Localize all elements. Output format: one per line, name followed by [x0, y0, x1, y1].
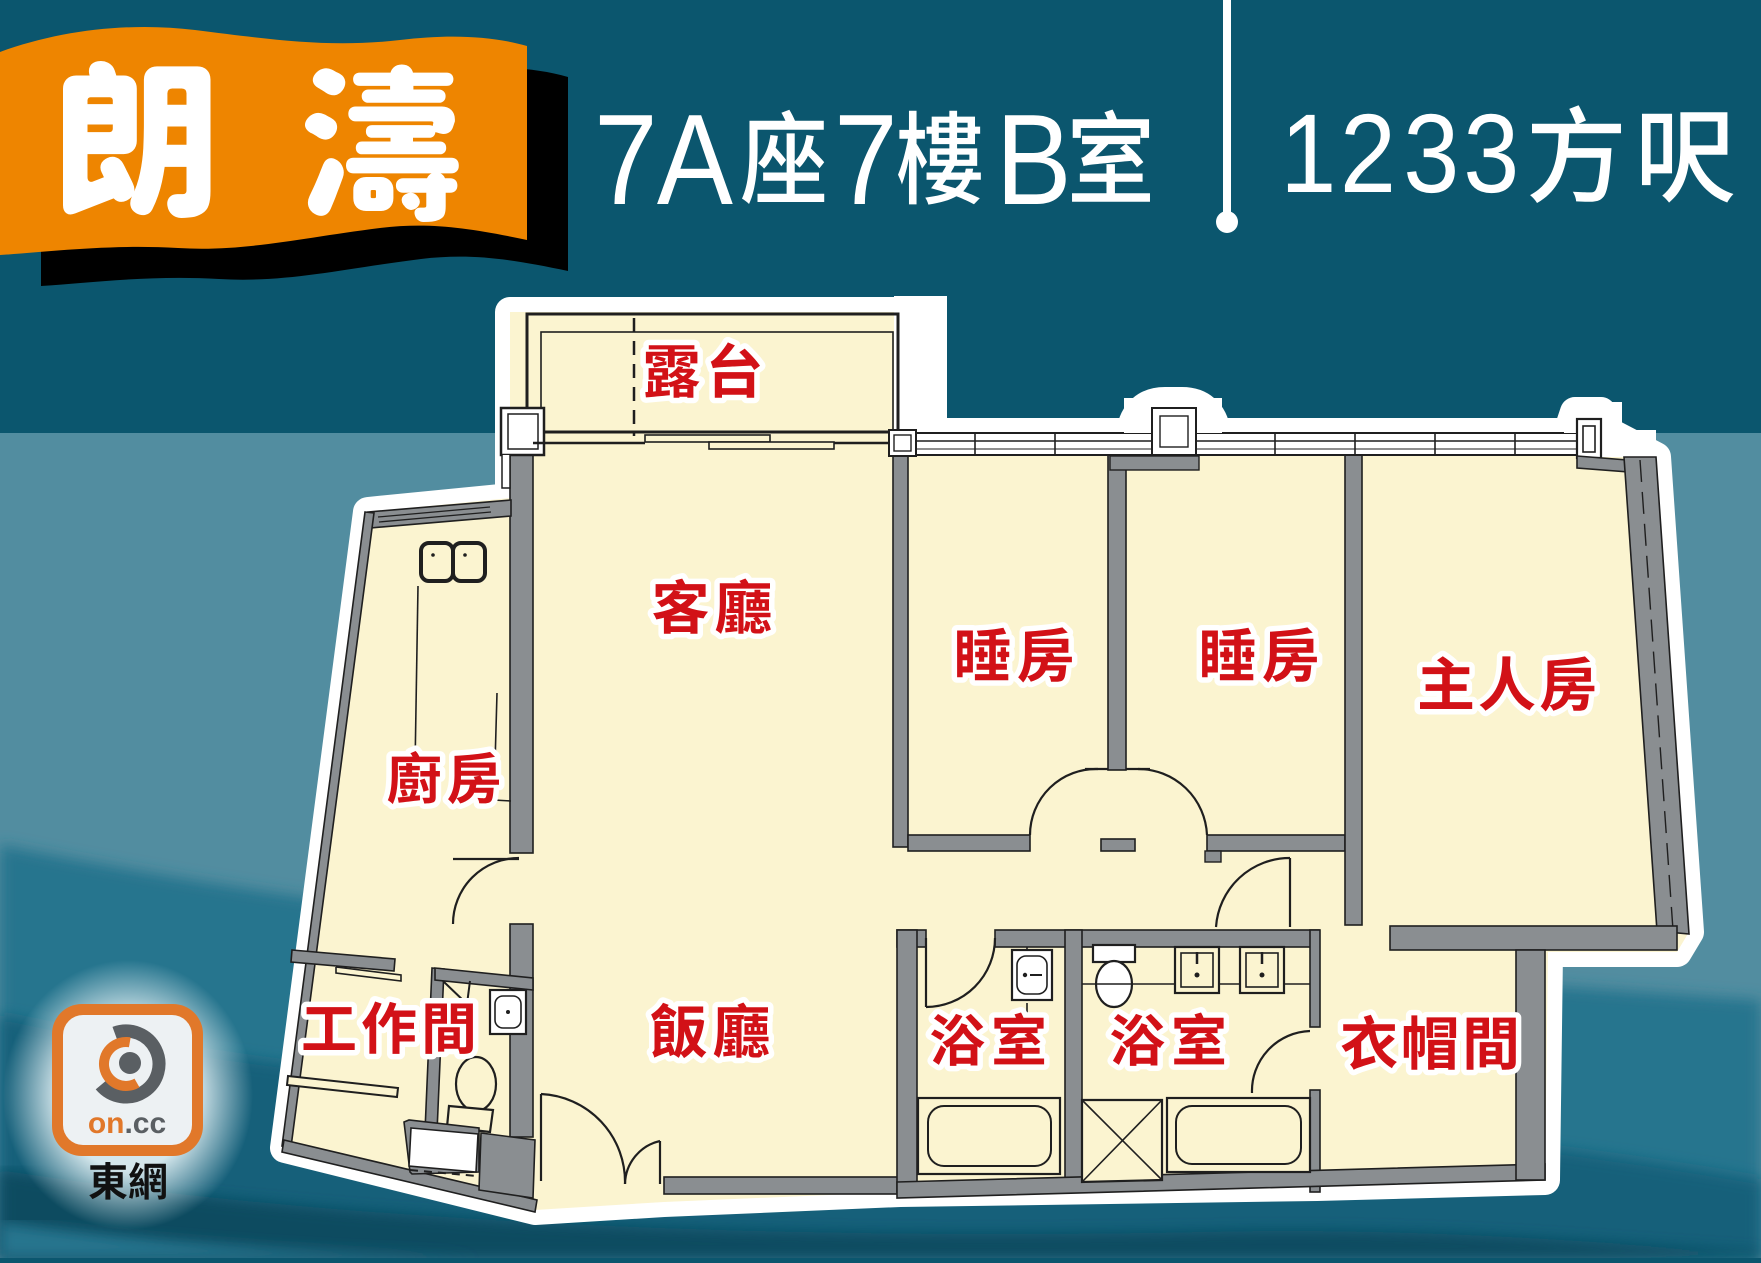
svg-text:on.cc: on.cc [88, 1107, 166, 1140]
